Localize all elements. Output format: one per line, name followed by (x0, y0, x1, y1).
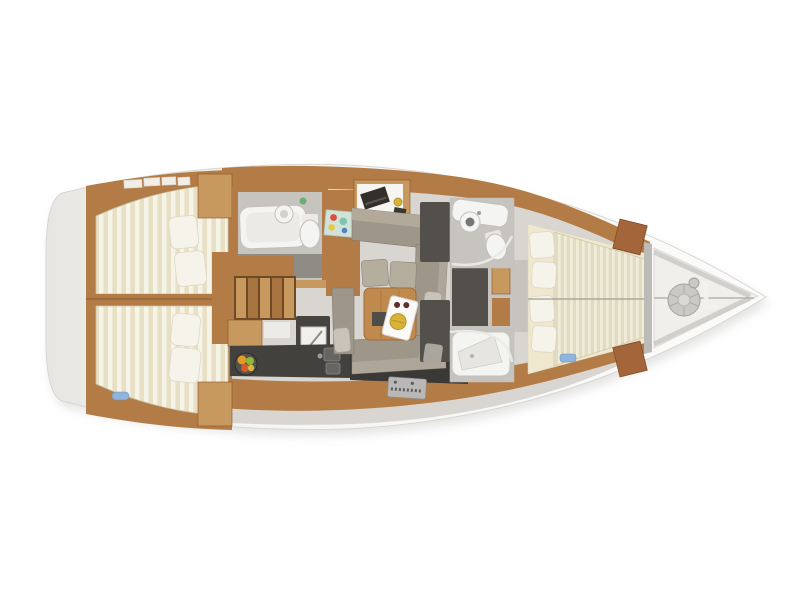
stair-top-landing (234, 256, 294, 276)
toilet (300, 220, 320, 248)
companionway-stairs (212, 252, 296, 346)
midship-locker (452, 266, 488, 326)
fwd-head-starboard (450, 330, 514, 382)
bow-bulkhead (644, 242, 652, 354)
basin-drain (280, 210, 288, 218)
stair-steps (236, 278, 294, 318)
plant-dot (300, 198, 307, 205)
fwd-head-port (450, 198, 514, 268)
yacht-floorplan-image: Top-view interior floor plan of a sailin… (0, 0, 800, 600)
bedside-cabinet (198, 382, 232, 426)
basin-drain (466, 218, 475, 227)
wardrobe-cushion (423, 343, 444, 365)
stainless-panel (387, 377, 426, 400)
deck-fitting (112, 392, 129, 400)
locker-door (492, 266, 510, 294)
chart-print (324, 210, 355, 237)
locker-door-lower (492, 298, 510, 326)
bathtub (239, 205, 306, 249)
bed-fitting (560, 354, 576, 362)
ottoman (361, 259, 389, 287)
windlass-knob (689, 278, 699, 288)
aft-cabin-starboard (86, 302, 232, 430)
forward-cabin (528, 219, 648, 377)
salon-table (364, 288, 418, 341)
throw-pillow (333, 327, 351, 352)
sink-second (326, 363, 340, 374)
faucet (477, 211, 481, 215)
aft-cabin-port (86, 170, 232, 298)
wardrobe-port (420, 202, 450, 262)
stair-lower-landing (228, 320, 262, 346)
fruit-bowl (235, 353, 257, 375)
drain (470, 354, 474, 358)
faucet (318, 354, 323, 359)
ottoman-second (389, 261, 416, 288)
floorplan-svg (0, 0, 800, 600)
desk-dish (394, 198, 402, 206)
bedside-cabinet (198, 174, 232, 218)
landing-floor (264, 322, 290, 338)
